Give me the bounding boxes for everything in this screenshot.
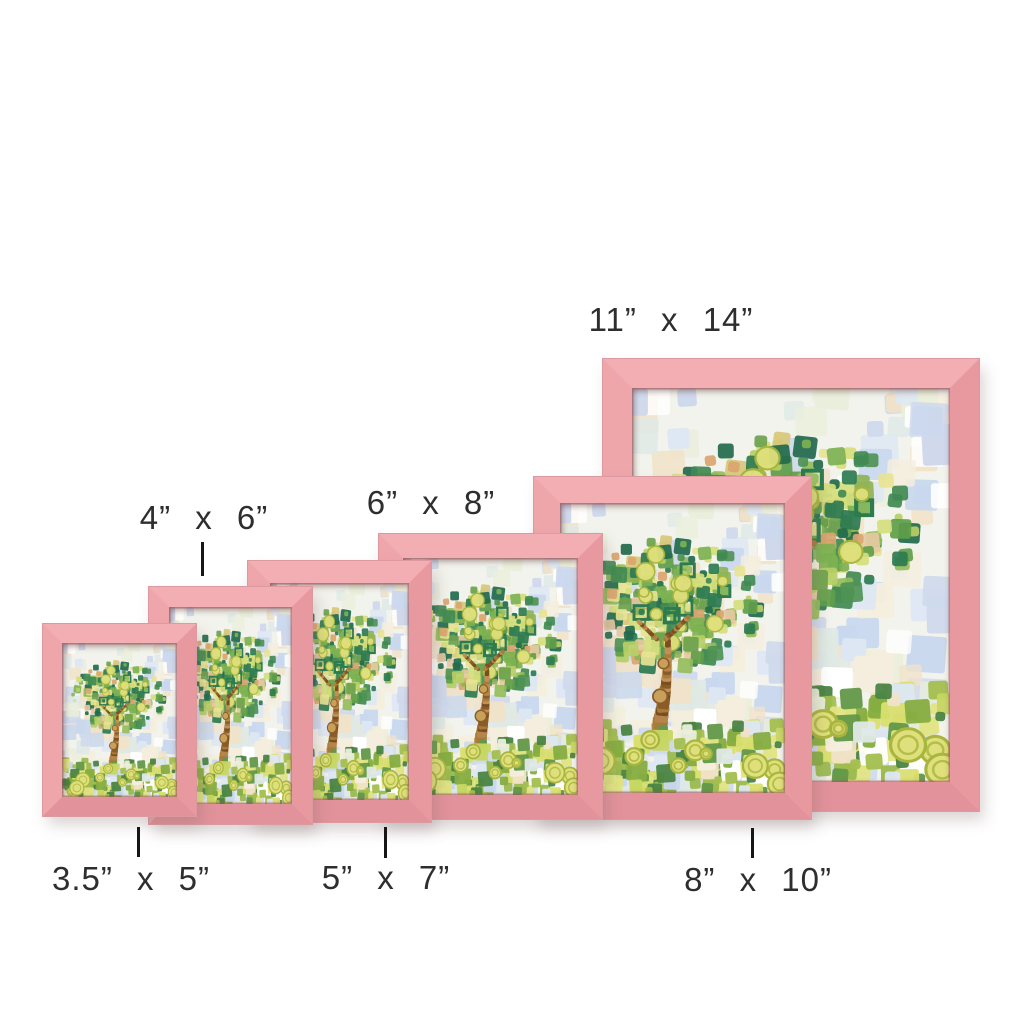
frame-size-comparison: 3.5” x 5” 4” x 6” 5” x 7” 6” x 8” 8” x 1… [0,0,1024,1024]
mosaic-tree-art [62,643,177,797]
frame-3-5x5 [43,624,196,816]
size-label-4x6: 4” x 6” [140,499,269,537]
size-label-11x14: 11” x 14” [589,301,754,339]
artwork-3-5x5 [62,643,177,797]
tick-line-5x7 [384,827,387,858]
tick-line-8x10 [751,828,754,858]
size-label-3-5x5: 3.5” x 5” [52,860,210,898]
size-label-5x7: 5” x 7” [322,859,451,897]
tick-line-4x6 [201,542,204,576]
tick-line-3-5x5 [137,827,140,857]
size-label-6x8: 6” x 8” [367,484,496,522]
size-label-8x10: 8” x 10” [684,861,832,899]
